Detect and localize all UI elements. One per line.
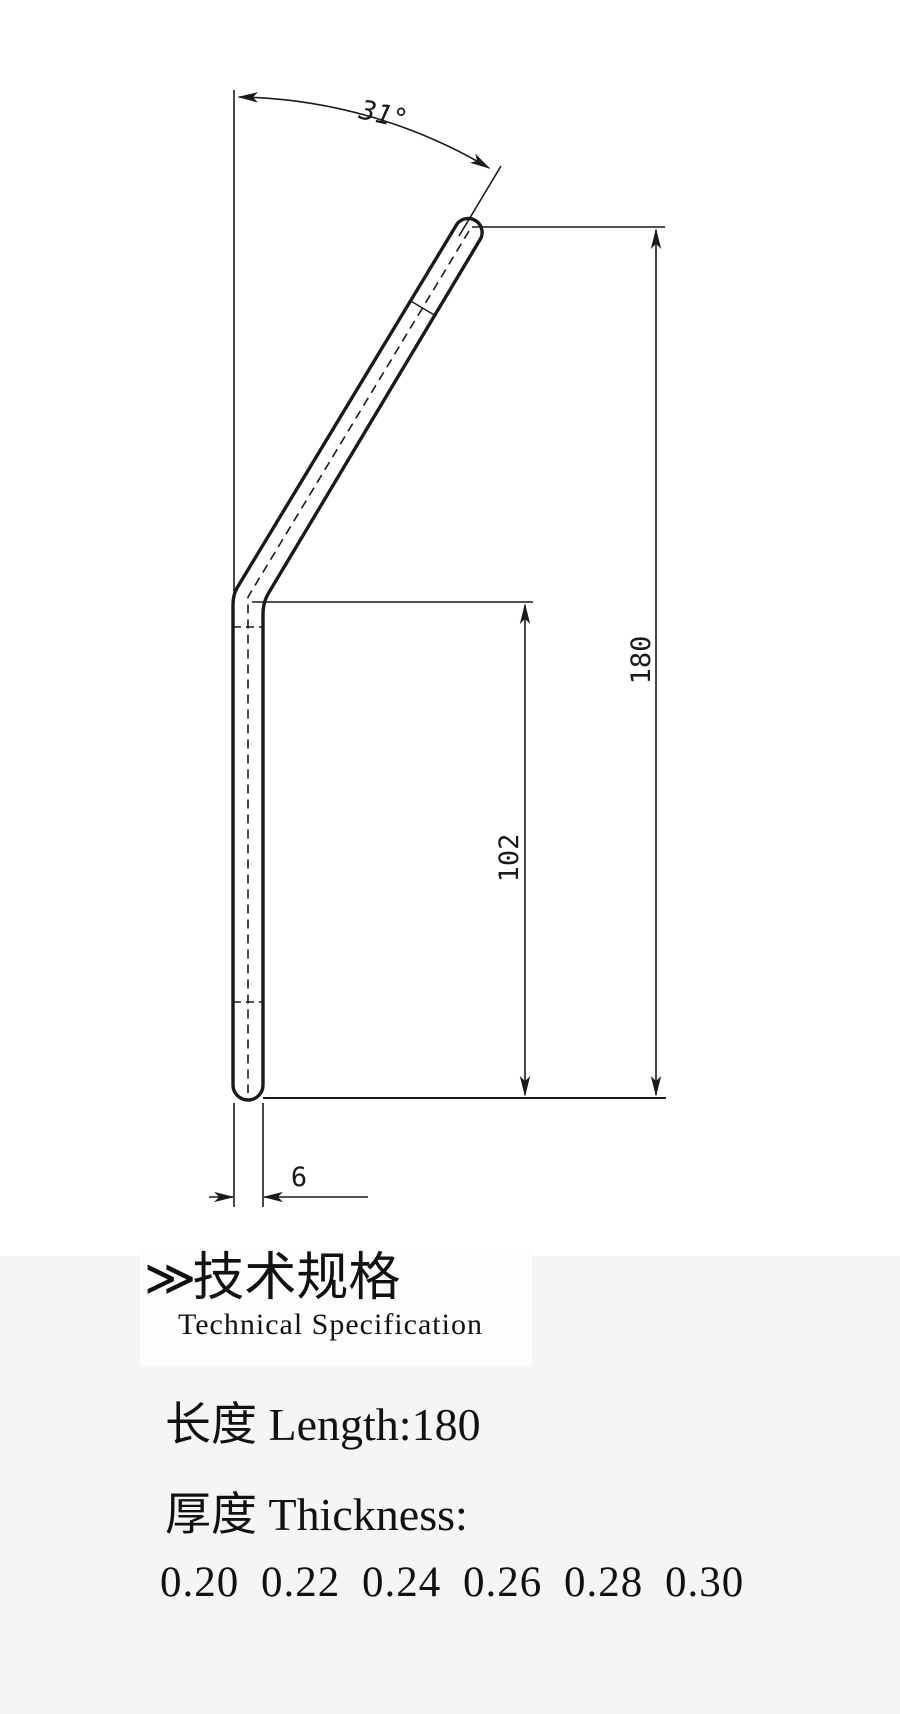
- part-outline: [233, 218, 482, 1100]
- spec-panel: ≫技术规格 Technical Specification 长度 Length:…: [0, 1256, 900, 1714]
- dimension-180-label: 180: [626, 636, 657, 685]
- chevron-icon: ≫: [144, 1250, 192, 1306]
- product-spec-sheet: 31° 180 102 6 ≫技术规格 Technical Specificat…: [0, 0, 900, 1714]
- spec-heading-box: ≫技术规格 Technical Specification: [140, 1248, 532, 1366]
- part-centerline: [248, 231, 469, 1093]
- upper-leg-tick: [409, 300, 436, 316]
- technical-drawing: 31° 180 102 6: [0, 0, 900, 1250]
- spec-heading-cn-text: 技术规格: [192, 1250, 400, 1307]
- spec-thickness-values: 0.20 0.22 0.24 0.26 0.28 0.30: [160, 1558, 744, 1607]
- dimension-102-label: 102: [494, 834, 525, 883]
- dimension-6-label: 6: [291, 1162, 307, 1193]
- spec-thickness-line: 厚度 Thickness:: [165, 1478, 468, 1544]
- angle-dimension-label: 31°: [355, 94, 410, 135]
- spec-length-line: 长度 Length:180: [165, 1388, 481, 1454]
- spec-heading-en: Technical Specification: [178, 1308, 483, 1342]
- spec-heading-cn: ≫技术规格: [144, 1250, 400, 1307]
